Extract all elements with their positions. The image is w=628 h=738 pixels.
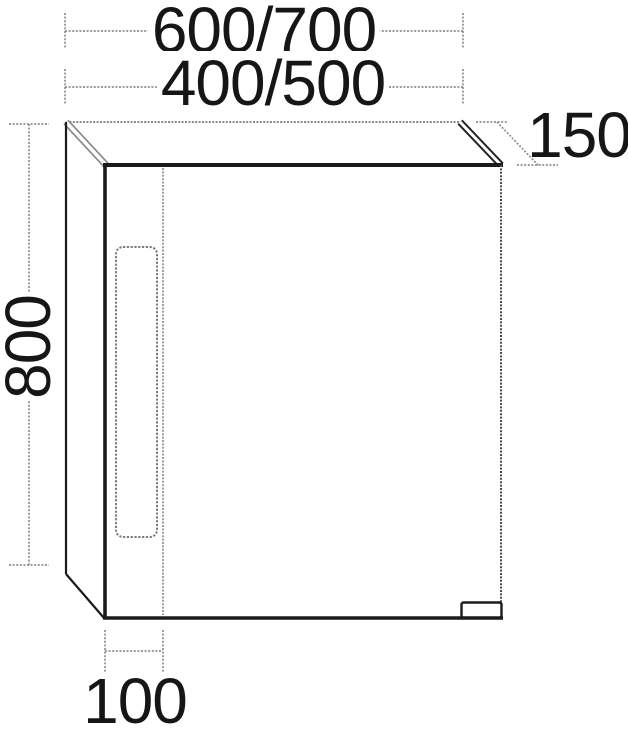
door-handle xyxy=(462,603,502,618)
dimension-label-detail: 100 xyxy=(79,669,191,733)
dimension-label-depth: 150 xyxy=(523,103,628,167)
dimension-label-width-small: 400/500 xyxy=(157,51,389,115)
cabinet-left-face xyxy=(66,122,105,618)
technical-drawing-canvas: 600/700 400/500 800 150 100 xyxy=(0,0,628,738)
cabinet-front-face xyxy=(104,165,503,618)
light-strip xyxy=(116,247,157,537)
cabinet-top-face xyxy=(66,122,501,165)
dimension-label-height: 800 xyxy=(0,293,60,401)
cabinet-body xyxy=(66,122,503,619)
